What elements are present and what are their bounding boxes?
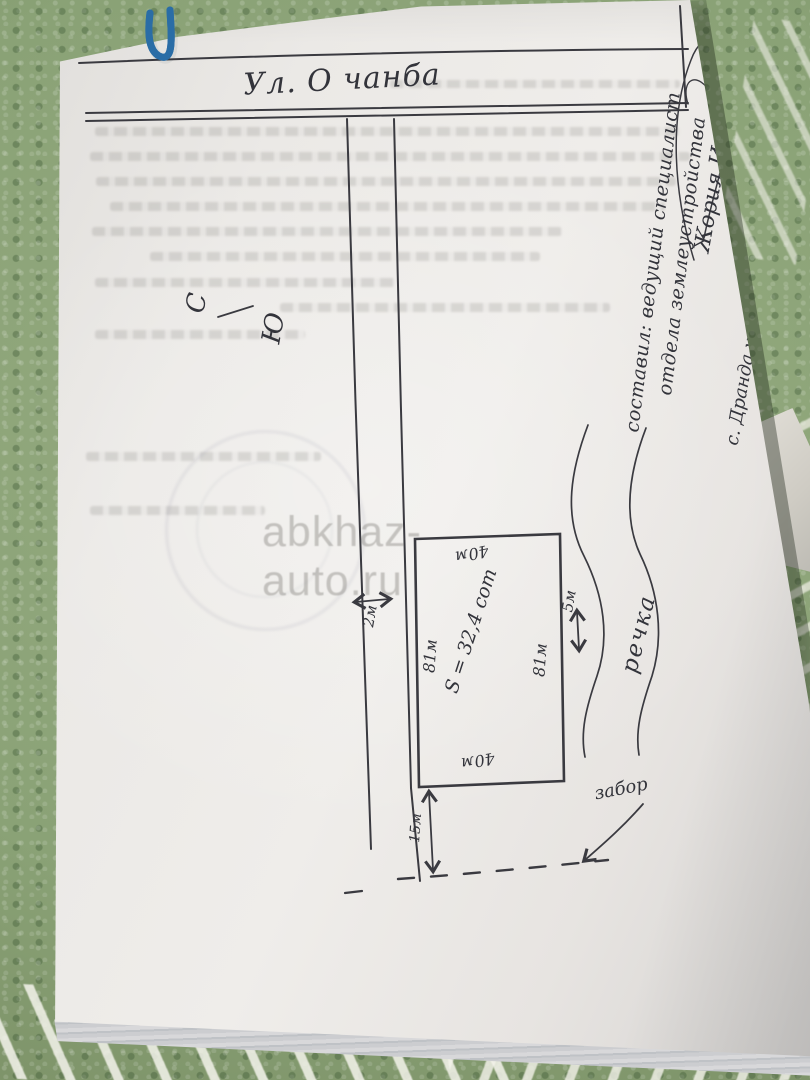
photo-of-plot-sketch: abkhaz-auto.ru — [0, 0, 810, 1080]
paper-clip — [0, 0, 810, 1080]
